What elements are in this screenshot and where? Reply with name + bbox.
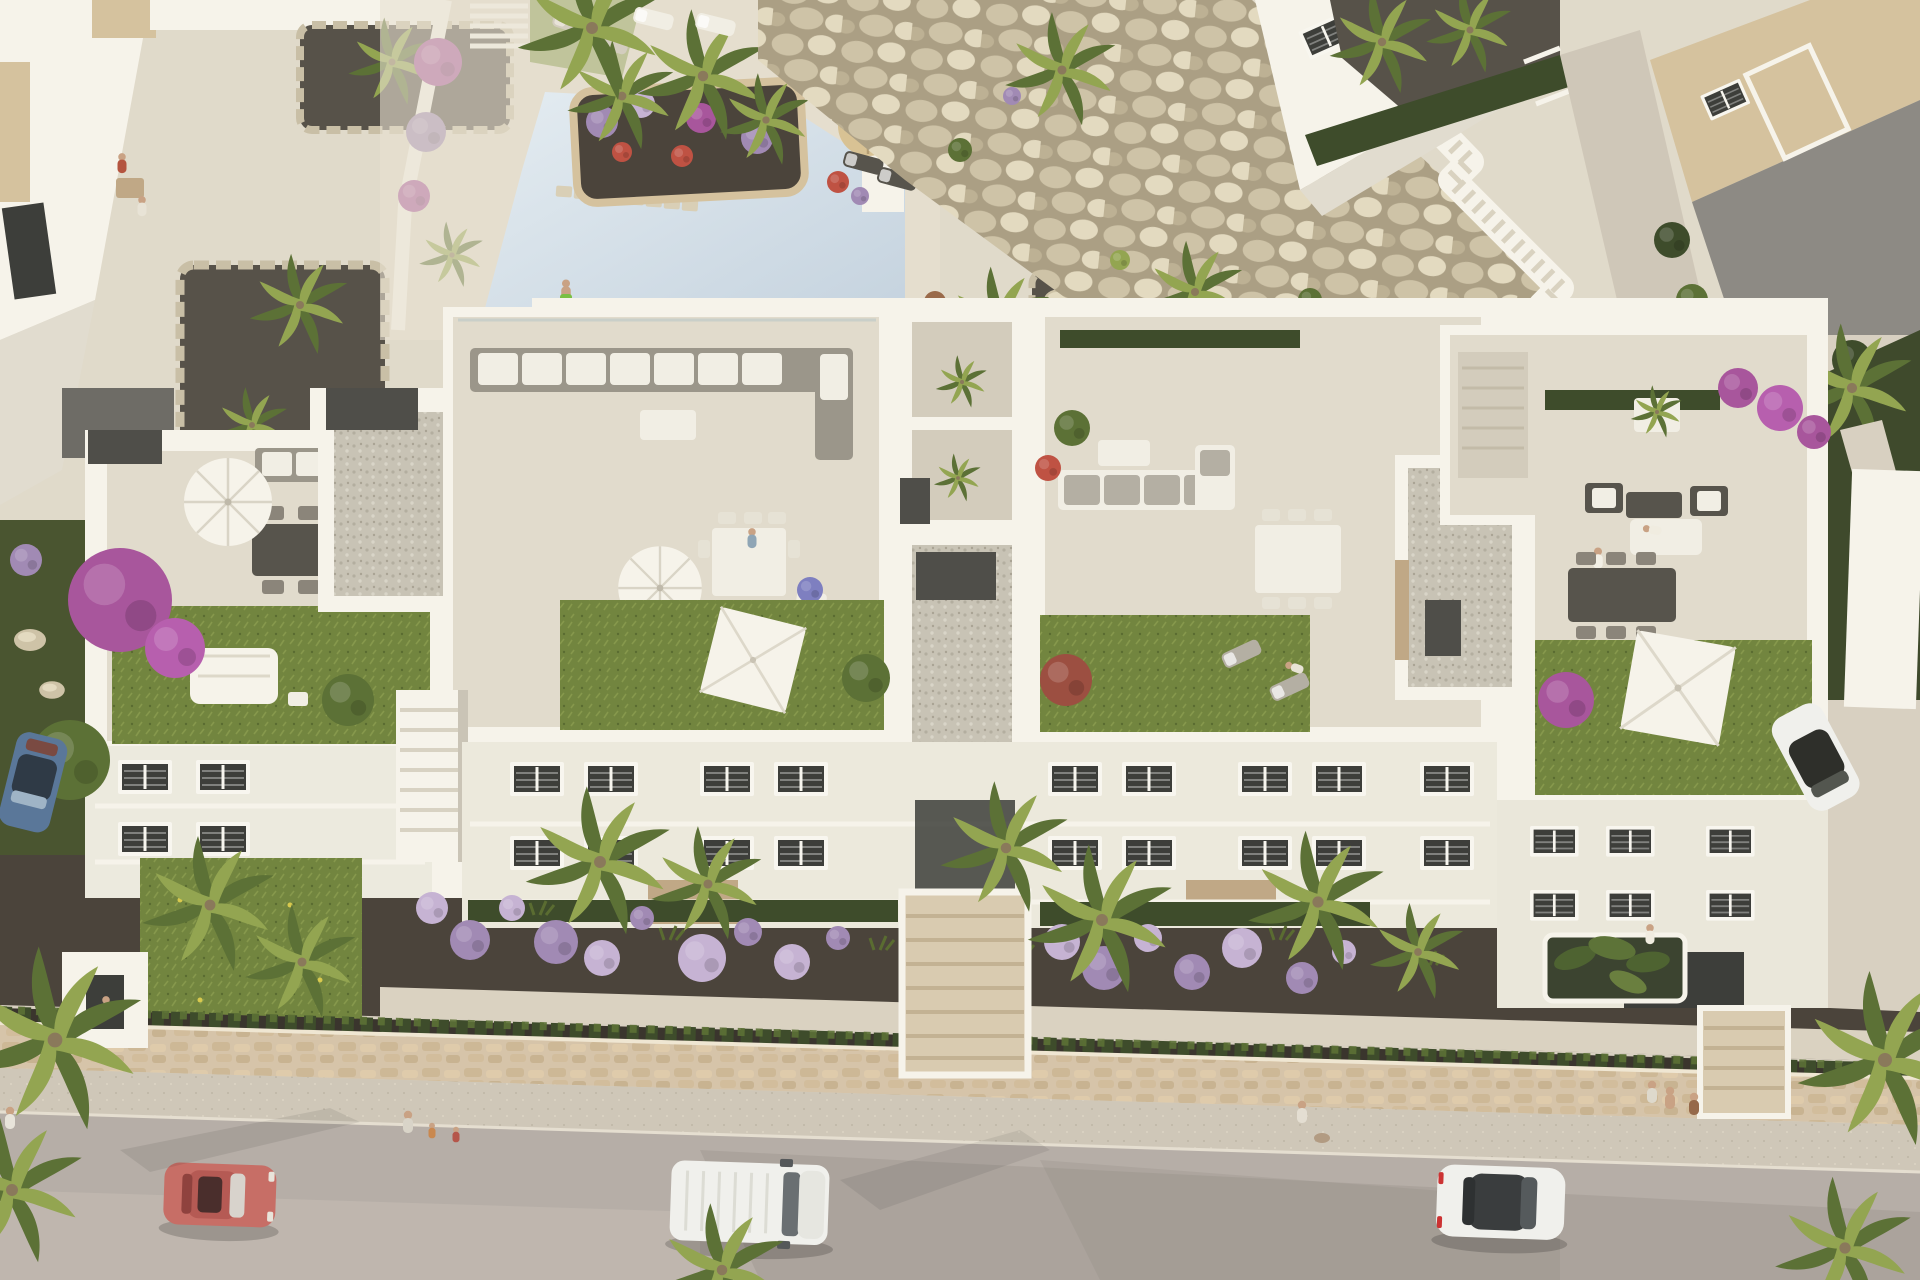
patio-table	[116, 178, 144, 198]
round-parasol	[184, 458, 272, 546]
external-stair	[396, 690, 468, 862]
dining-table-white	[1255, 525, 1341, 593]
van-white	[665, 1155, 836, 1262]
coffee-table	[1626, 492, 1682, 518]
person	[138, 196, 147, 216]
person-on-path	[1646, 924, 1655, 944]
outdoor-sofa	[1630, 519, 1702, 555]
coffee-table	[1098, 440, 1150, 466]
person-on-terrace	[748, 528, 757, 548]
aerial-render-canvas	[0, 0, 1920, 1280]
hedge-planter	[1060, 330, 1300, 348]
dog	[1314, 1133, 1330, 1143]
ac-unit	[88, 430, 162, 464]
large-leaf-planter	[1545, 932, 1685, 1001]
ac-unit	[916, 552, 996, 600]
architectural-render	[0, 0, 1920, 1280]
rooftop-terrace-2	[448, 312, 890, 732]
ac-unit	[326, 388, 418, 430]
square-parasol	[1620, 630, 1736, 746]
dining-table	[1568, 568, 1676, 622]
ac-unit	[1425, 600, 1461, 656]
car-red-coupe	[158, 1162, 281, 1243]
car-white-sedan	[1431, 1164, 1570, 1256]
terrace-tree	[322, 674, 374, 726]
coffee-table	[640, 410, 696, 440]
flower-planter	[797, 577, 823, 603]
person	[118, 153, 127, 173]
terrace-tree	[842, 654, 890, 702]
stairwell	[1458, 352, 1528, 478]
entrance-steps-center	[902, 892, 1028, 1075]
flower-pot	[1035, 455, 1061, 481]
red-shrub	[1040, 654, 1092, 706]
hedge-planter	[1545, 390, 1720, 410]
red-shrub	[1538, 672, 1594, 728]
entrance-steps-right	[1700, 1008, 1788, 1116]
